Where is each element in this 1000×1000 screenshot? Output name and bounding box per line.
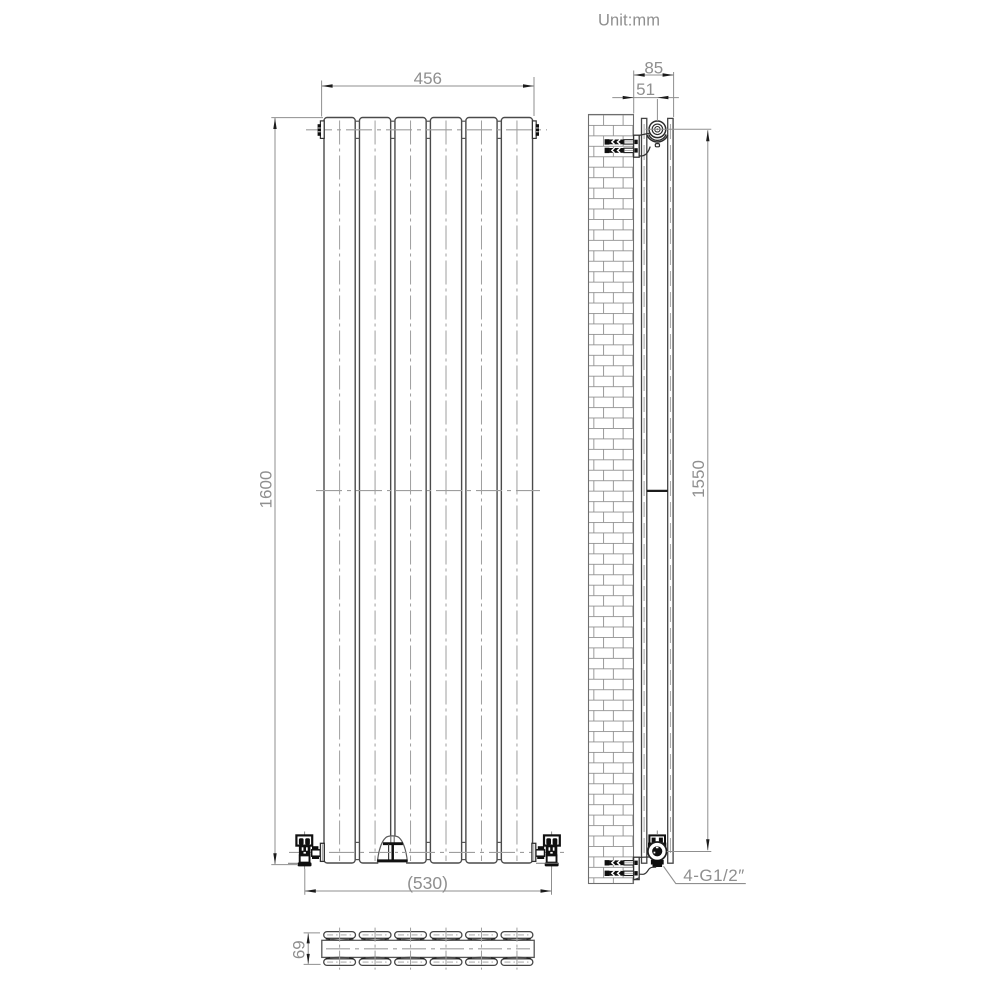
svg-text:(530): (530) [407,873,448,893]
svg-text:Unit:mm: Unit:mm [598,12,660,30]
svg-text:4-G1/2″: 4-G1/2″ [683,866,745,885]
svg-text:456: 456 [414,69,442,88]
svg-text:85: 85 [644,59,663,78]
svg-text:69: 69 [289,940,308,959]
svg-text:51: 51 [636,80,655,99]
svg-text:1550: 1550 [689,460,708,498]
svg-text:1600: 1600 [257,471,276,509]
